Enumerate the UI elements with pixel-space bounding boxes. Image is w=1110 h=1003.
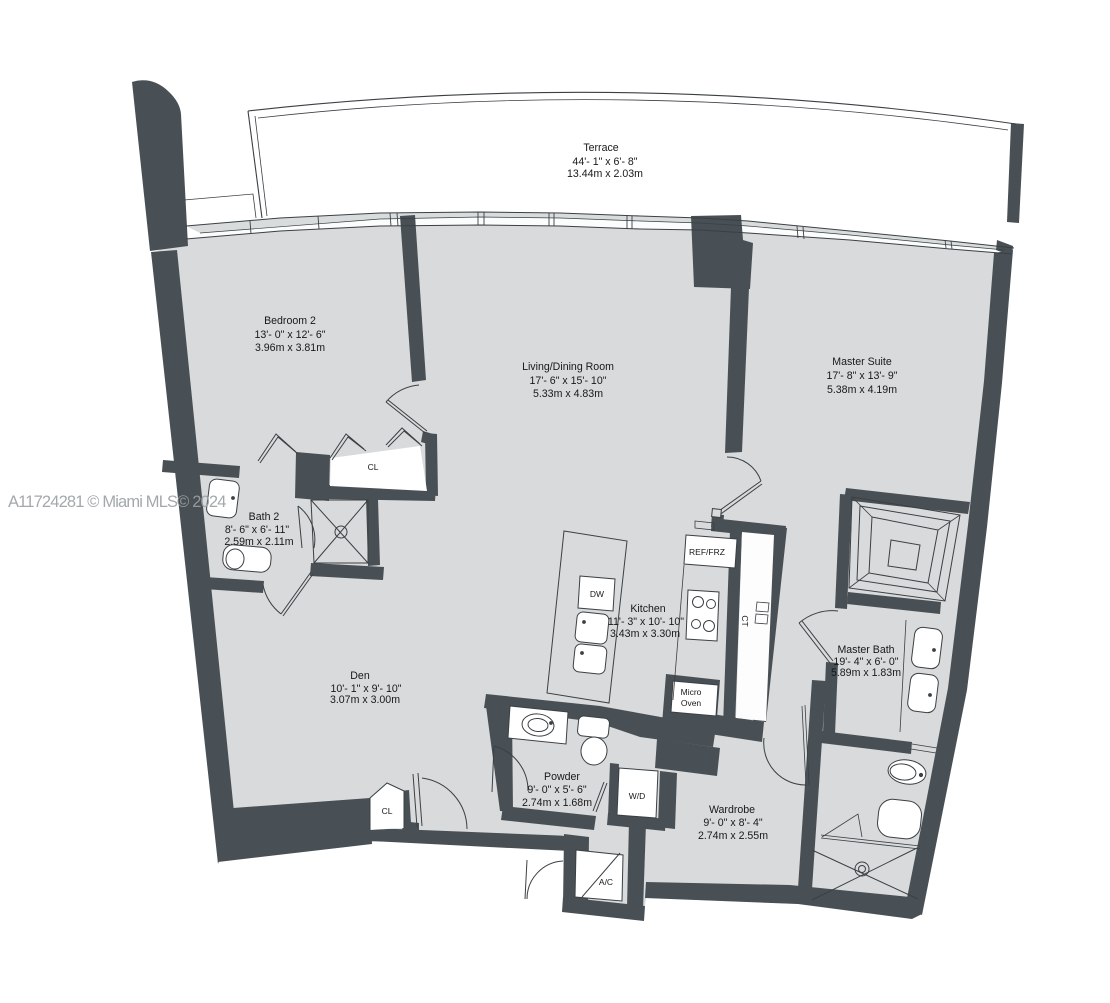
svg-text:CL: CL [382,806,393,816]
svg-text:CL: CL [368,462,379,472]
svg-text:2.74m x 2.55m: 2.74m x 2.55m [698,830,768,842]
svg-text:Micro: Micro [681,687,702,697]
svg-text:Terrace: Terrace [583,142,618,154]
svg-text:Oven: Oven [681,698,702,708]
svg-text:3.96m x 3.81m: 3.96m x 3.81m [255,342,325,354]
svg-text:2.74m x 1.68m: 2.74m x 1.68m [522,797,592,809]
svg-text:9'- 0" x 8'- 4": 9'- 0" x 8'- 4" [703,817,762,829]
svg-text:Bedroom 2: Bedroom 2 [264,315,316,327]
svg-text:Kitchen: Kitchen [630,603,665,615]
svg-text:Den: Den [350,670,370,682]
svg-text:13'- 0" x 12'- 6": 13'- 0" x 12'- 6" [254,329,325,341]
svg-text:8'- 6" x 6'- 11": 8'- 6" x 6'- 11" [225,524,290,536]
svg-text:Master Suite: Master Suite [832,356,892,368]
svg-text:5.33m x 4.83m: 5.33m x 4.83m [533,388,603,400]
svg-text:CT: CT [740,615,750,626]
svg-text:3.43m x 3.30m: 3.43m x 3.30m [610,628,680,640]
svg-text:Bath 2: Bath 2 [249,511,280,523]
svg-text:17'- 8" x 13'- 9": 17'- 8" x 13'- 9" [826,370,897,382]
svg-text:3.07m x 3.00m: 3.07m x 3.00m [330,694,400,706]
svg-text:Living/Dining Room: Living/Dining Room [522,361,614,373]
svg-text:Wardrobe: Wardrobe [709,804,755,816]
svg-text:44'- 1" x 6'- 8": 44'- 1" x 6'- 8" [572,156,637,168]
svg-text:17'- 6" x 15'- 10": 17'- 6" x 15'- 10" [530,375,607,387]
svg-text:9'- 0" x 5'- 6": 9'- 0" x 5'- 6" [527,784,586,796]
svg-text:Master Bath: Master Bath [837,644,894,656]
svg-text:REF/FRZ: REF/FRZ [689,547,725,557]
svg-text:DW: DW [590,589,604,599]
svg-text:5.89m x 1.83m: 5.89m x 1.83m [831,667,901,679]
svg-text:A/C: A/C [599,877,613,887]
svg-text:11'- 3" x 10'- 10": 11'- 3" x 10'- 10" [608,616,684,628]
svg-text:2.59m x 2.11m: 2.59m x 2.11m [224,536,293,548]
svg-text:Powder: Powder [544,771,580,783]
svg-text:A11724281 © Miami MLS© 2024: A11724281 © Miami MLS© 2024 [8,493,226,511]
svg-text:13.44m x 2.03m: 13.44m x 2.03m [567,168,643,180]
svg-text:W/D: W/D [629,791,646,801]
svg-text:5.38m x 4.19m: 5.38m x 4.19m [827,384,897,396]
